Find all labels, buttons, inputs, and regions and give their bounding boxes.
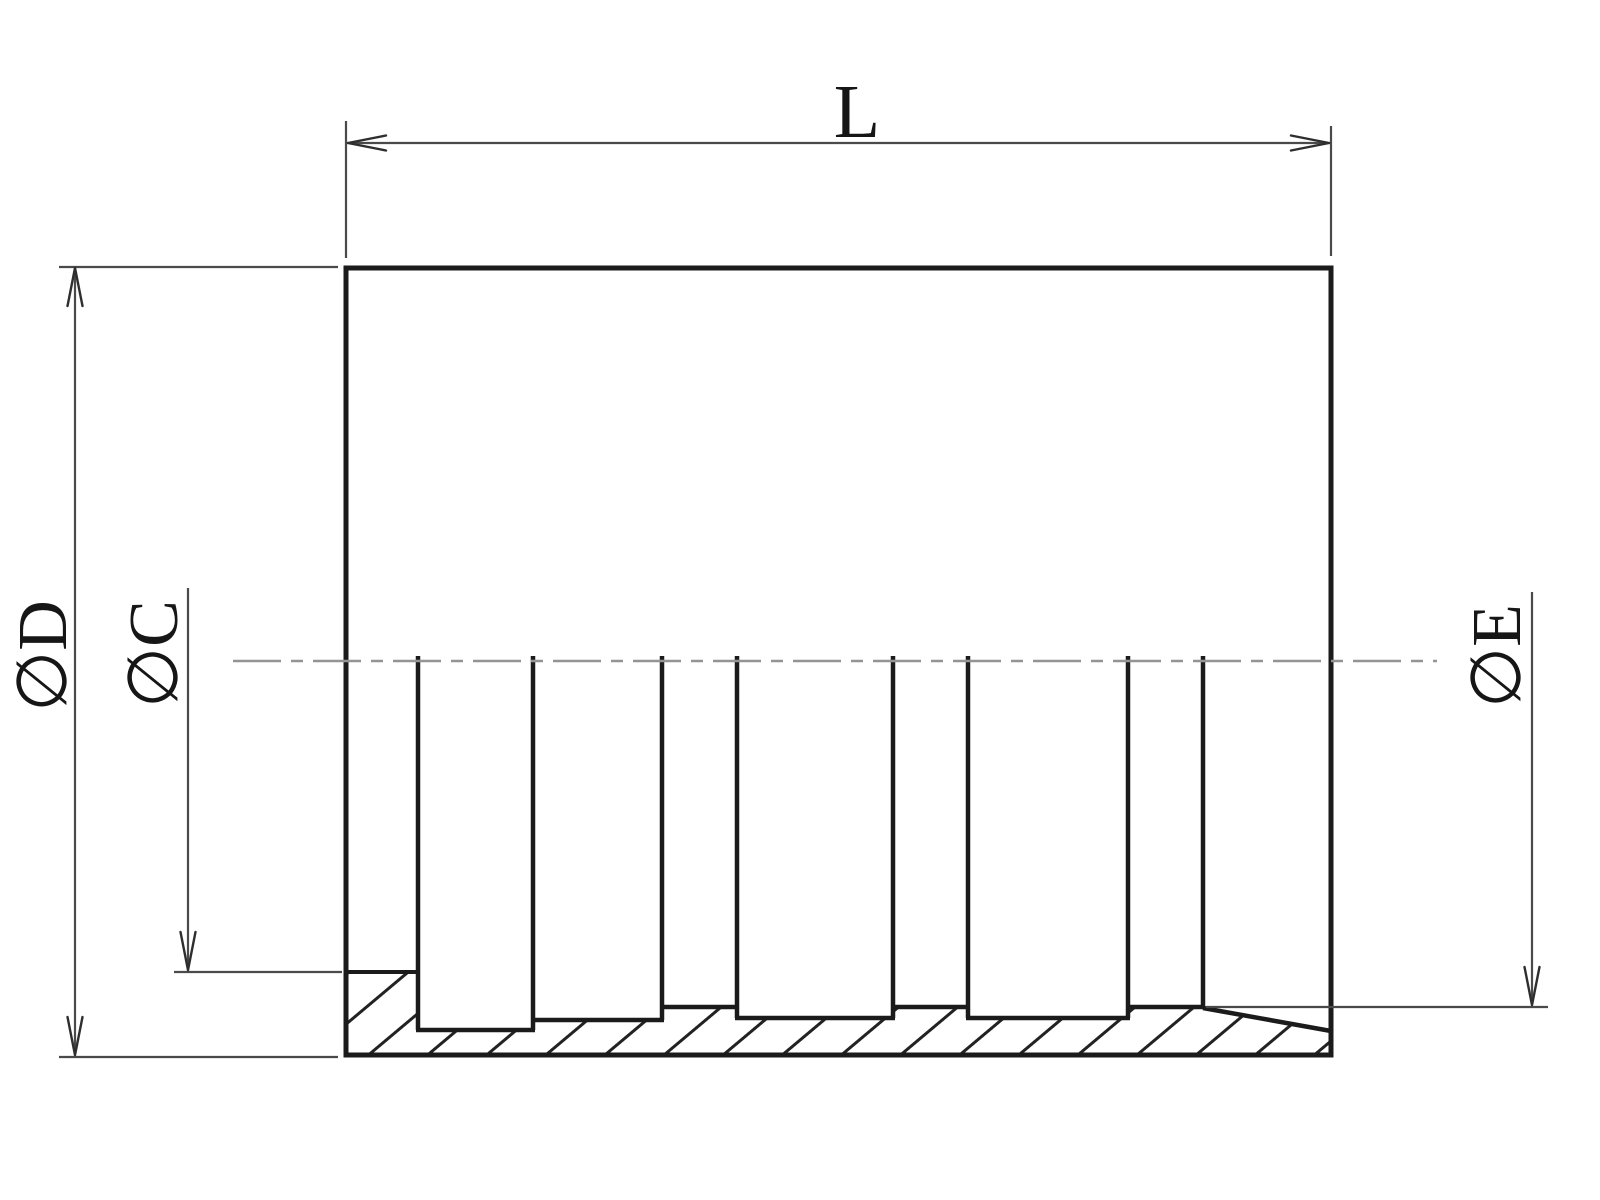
drawing-canvas: L ∅D ∅C ∅E bbox=[0, 0, 1600, 1200]
dim-label-inner-diameter: ∅E bbox=[1459, 604, 1536, 708]
serration-profile bbox=[416, 656, 1205, 1030]
ferrule-section-technical-drawing: L ∅D ∅C ∅E bbox=[0, 0, 1600, 1200]
dim-label-bore-diameter: ∅C bbox=[116, 600, 193, 708]
dim-label-outer-diameter: ∅D bbox=[5, 600, 82, 712]
dimension-E: ∅E bbox=[1206, 592, 1548, 1007]
dimension-C: ∅C bbox=[116, 588, 342, 972]
dimension-L: L bbox=[346, 70, 1331, 258]
dim-label-length: L bbox=[834, 70, 880, 154]
section-hatch-region bbox=[346, 972, 1331, 1053]
